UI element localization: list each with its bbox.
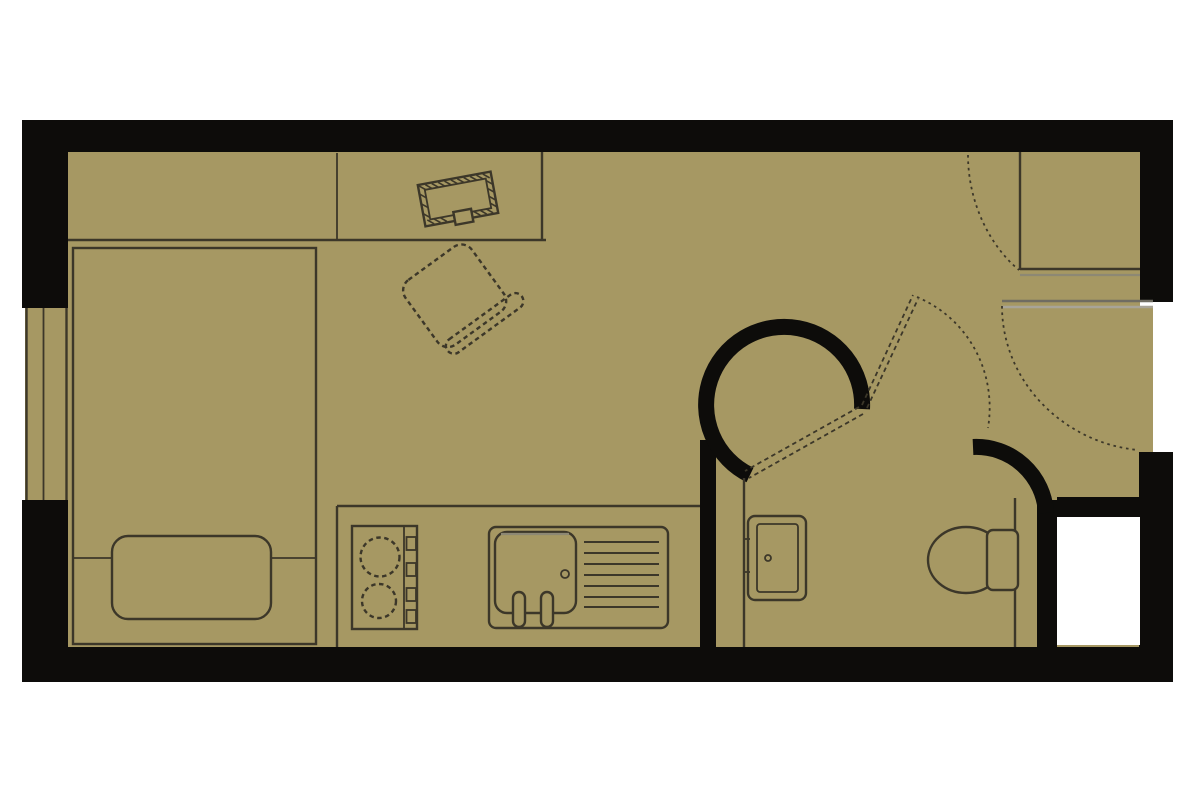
window-sill-floor <box>25 308 68 500</box>
toilet-cistern <box>987 530 1018 590</box>
wall-bottom <box>22 647 1173 682</box>
wall-bathroom-east <box>1037 500 1057 650</box>
wall-right-upper <box>1140 120 1173 302</box>
wall-bathroom-west <box>700 440 716 655</box>
bed-pillow <box>112 536 271 619</box>
laptop-hinge-block <box>453 209 473 225</box>
wall-right-lower <box>1139 452 1173 682</box>
wall-left-upper <box>22 120 68 308</box>
sink-tap-right <box>541 592 553 627</box>
floor-plan-page <box>0 0 1200 800</box>
service-void <box>1057 517 1140 645</box>
wall-void-top <box>1057 497 1140 517</box>
sink-tap-left <box>513 592 525 627</box>
wall-top <box>22 120 1173 152</box>
entry-floor-band <box>1140 308 1153 452</box>
floor-plan-drawing <box>0 0 1200 800</box>
